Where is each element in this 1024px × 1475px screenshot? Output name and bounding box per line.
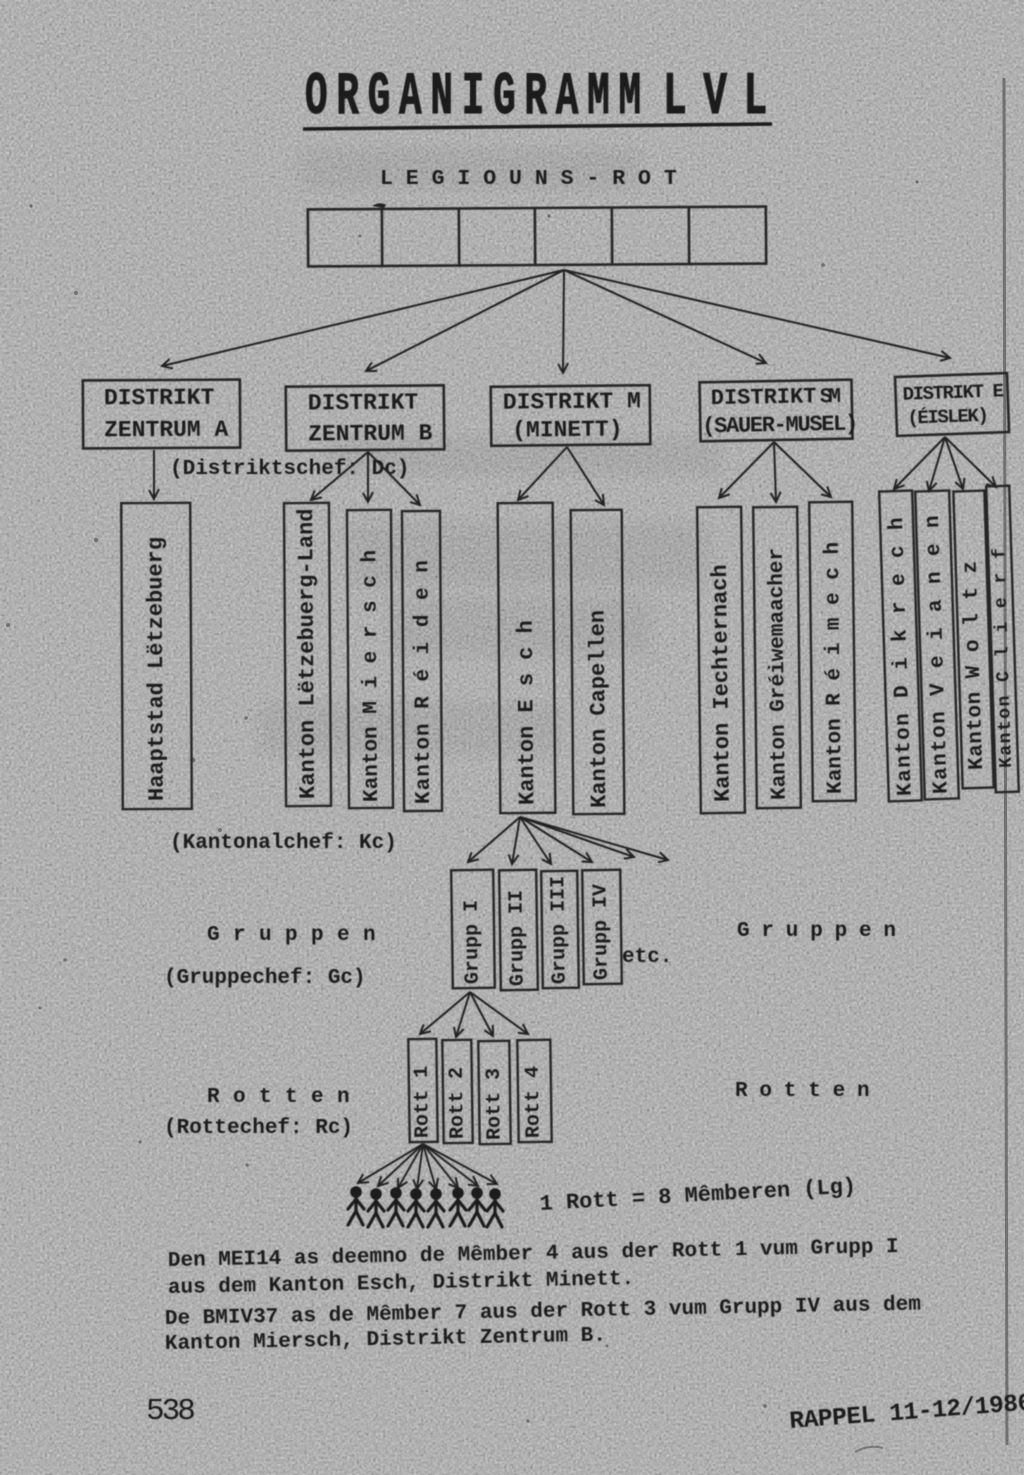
svg-text:LVL: LVL [663, 65, 784, 132]
svg-text:Rott 1: Rott 1 [411, 1066, 435, 1138]
svg-text:(SAUER-MUSEL): (SAUER-MUSEL) [702, 412, 857, 440]
svg-text:(Kantonalchef: Kc): (Kantonalchef: Kc) [170, 832, 397, 855]
svg-text:538: 538 [146, 1394, 194, 1429]
svg-text:Haaptstad Lëtzebuerg: Haaptstad Lëtzebuerg [143, 537, 169, 801]
svg-text:DISTRIKT: DISTRIKT [711, 384, 817, 411]
svg-text:ZENTRUM A: ZENTRUM A [104, 417, 229, 444]
svg-text:(ÉISLEK): (ÉISLEK) [907, 405, 988, 430]
svg-text:L E G I O U N S - R O T: L E G I O U N S - R O T [380, 167, 677, 191]
svg-text:(Rottechef: Rc): (Rottechef: Rc) [164, 1117, 353, 1140]
svg-text:DISTRIKT M: DISTRIKT M [503, 388, 641, 415]
svg-text:Grupp II: Grupp II [505, 890, 529, 986]
svg-text:Kanton M i e r s c h: Kanton M i e r s c h [359, 550, 384, 802]
svg-text:etc.: etc. [622, 946, 672, 969]
svg-text:Kanton Lëtzebuerg-Land: Kanton Lëtzebuerg-Land [294, 508, 321, 799]
svg-text:Kanton Capellen: Kanton Capellen [586, 610, 613, 808]
svg-text:Rott 2: Rott 2 [446, 1067, 470, 1139]
svg-text:(Distriktschef: Dc): (Distriktschef: Dc) [170, 458, 409, 481]
svg-text:R o t t e n: R o t t e n [207, 1086, 350, 1109]
svg-text:Kanton R é i d e n: Kanton R é i d e n [411, 559, 436, 804]
svg-text:Kanton Iechternach: Kanton Iechternach [708, 564, 736, 802]
svg-text:Rott 4: Rott 4 [522, 1066, 546, 1138]
svg-text:DISTRIKT: DISTRIKT [104, 385, 215, 412]
svg-text:Kanton Gréiwemaacher: Kanton Gréiwemaacher [766, 548, 792, 800]
svg-text:DISTRIKT E: DISTRIKT E [902, 380, 1004, 406]
svg-text:Grupp III: Grupp III [547, 876, 572, 984]
svg-text:DISTRIKT: DISTRIKT [308, 390, 419, 417]
svg-text:(MINETT): (MINETT) [512, 416, 623, 443]
svg-text:ZENTRUM B: ZENTRUM B [308, 420, 433, 447]
svg-text:G r u p p e n: G r u p p e n [737, 920, 896, 943]
svg-text:ORGANIGRAMM: ORGANIGRAMM [305, 64, 650, 132]
svg-text:Kanton E s c h: Kanton E s c h [514, 620, 541, 805]
svg-text:Grupp IV: Grupp IV [589, 884, 613, 980]
svg-text:R o t t e n: R o t t e n [735, 1080, 869, 1103]
svg-text:G r u p p e n: G r u p p e n [207, 924, 376, 947]
svg-text:Grupp I: Grupp I [461, 900, 485, 984]
svg-text:Kanton R é i m e c h: Kanton R é i m e c h [822, 542, 848, 794]
svg-text:(Gruppechef: Gc): (Gruppechef: Gc) [164, 967, 366, 990]
svg-text:Rott 3: Rott 3 [483, 1068, 507, 1140]
